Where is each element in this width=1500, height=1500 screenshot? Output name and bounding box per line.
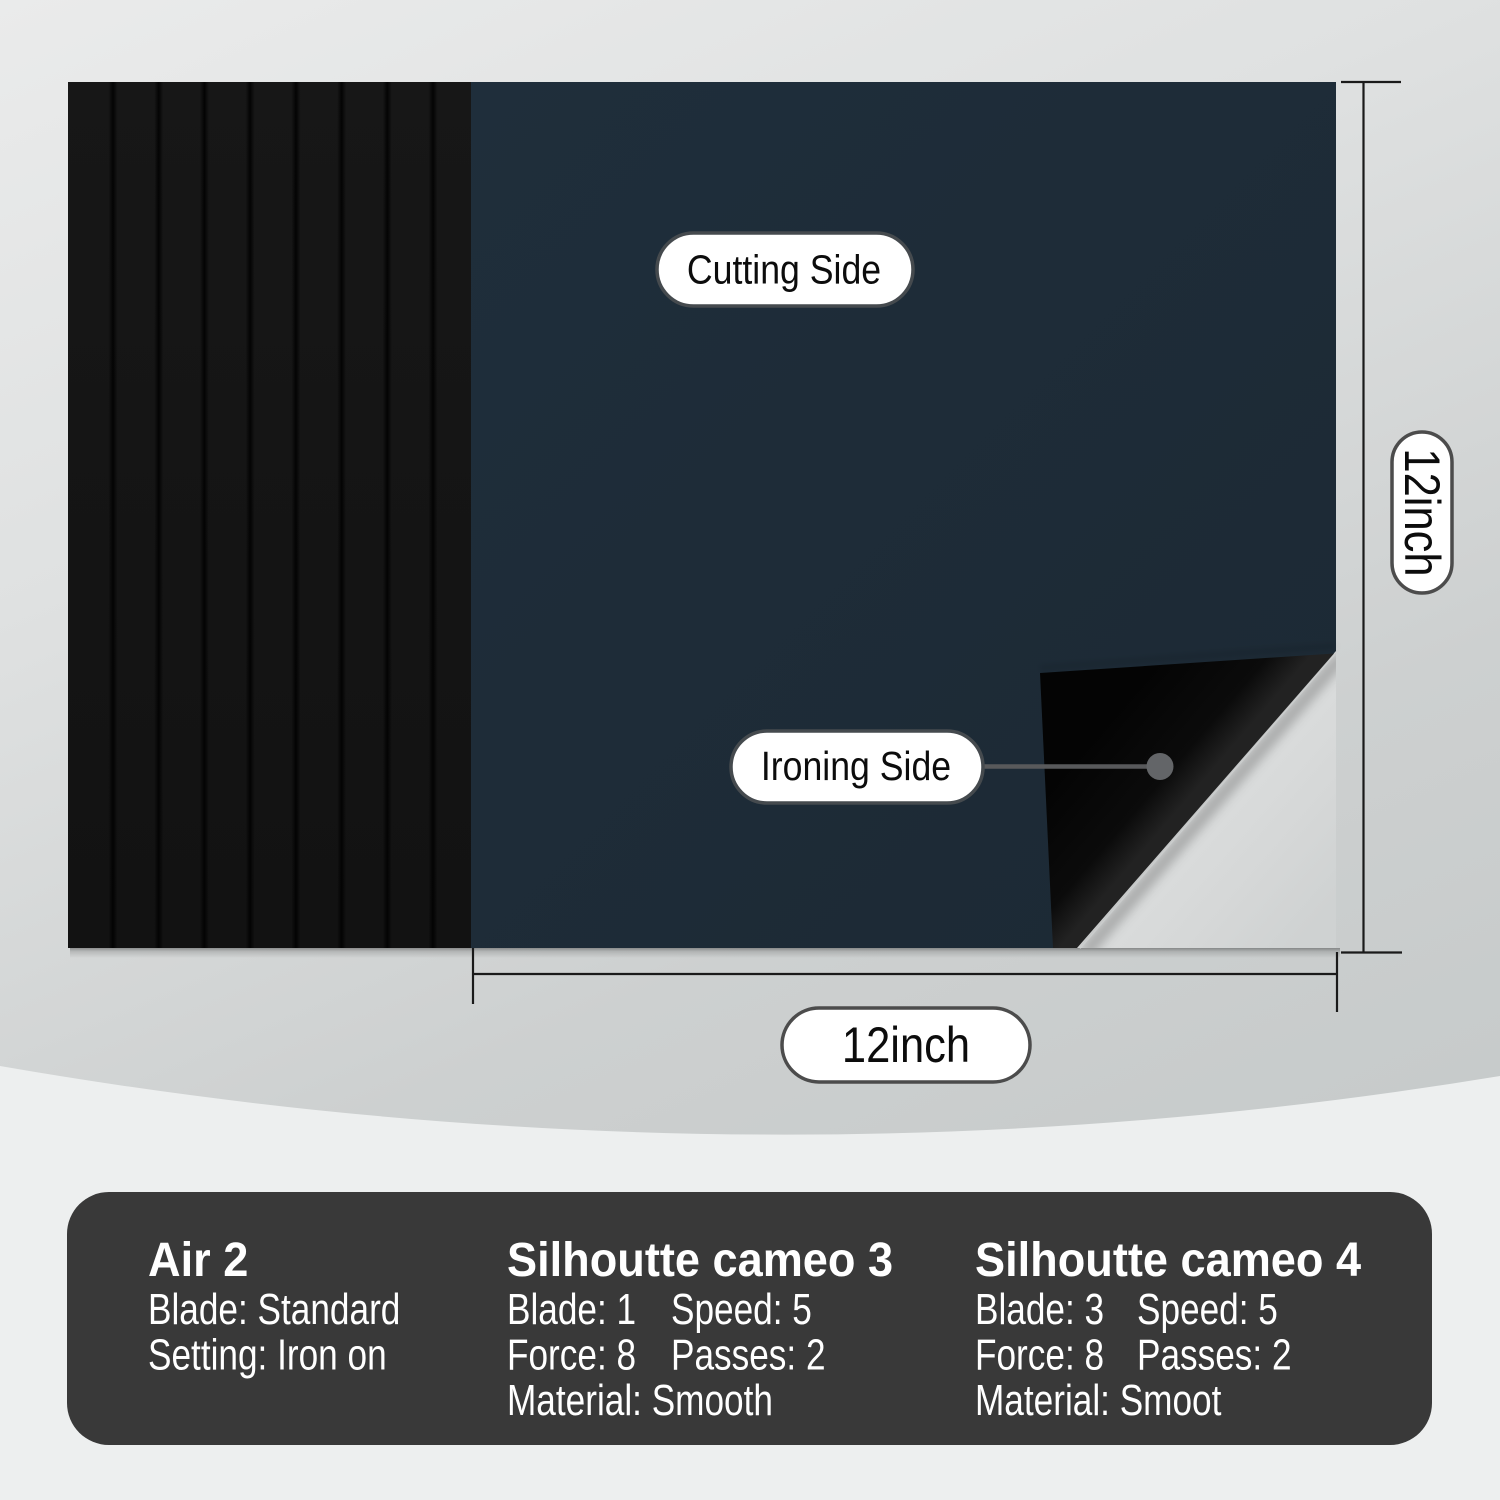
svg-text:Material: Smooth: Material: Smooth bbox=[507, 1376, 773, 1425]
svg-text:12inch: 12inch bbox=[842, 1017, 970, 1072]
svg-text:Silhoutte cameo 4: Silhoutte cameo 4 bbox=[975, 1233, 1361, 1287]
svg-text:Setting: Iron on: Setting: Iron on bbox=[148, 1331, 387, 1380]
svg-text:12inch: 12inch bbox=[1394, 448, 1449, 576]
svg-text:Blade: Standard: Blade: Standard bbox=[148, 1285, 400, 1334]
svg-text:Speed: 5: Speed: 5 bbox=[1137, 1285, 1278, 1334]
svg-text:Force: 8: Force: 8 bbox=[975, 1331, 1104, 1380]
svg-text:Cutting Side: Cutting Side bbox=[687, 247, 881, 293]
svg-text:Ironing Side: Ironing Side bbox=[761, 744, 951, 790]
svg-text:Force: 8: Force: 8 bbox=[507, 1331, 636, 1380]
svg-text:Speed: 5: Speed: 5 bbox=[671, 1285, 812, 1334]
svg-text:Passes: 2: Passes: 2 bbox=[1137, 1331, 1292, 1380]
svg-text:Air 2: Air 2 bbox=[148, 1233, 248, 1287]
svg-text:Blade: 3: Blade: 3 bbox=[975, 1285, 1104, 1334]
svg-text:Passes: 2: Passes: 2 bbox=[671, 1331, 826, 1380]
svg-text:Silhoutte cameo 3: Silhoutte cameo 3 bbox=[507, 1233, 893, 1287]
svg-text:Material: Smoot: Material: Smoot bbox=[975, 1376, 1221, 1425]
svg-text:Blade: 1: Blade: 1 bbox=[507, 1285, 636, 1334]
